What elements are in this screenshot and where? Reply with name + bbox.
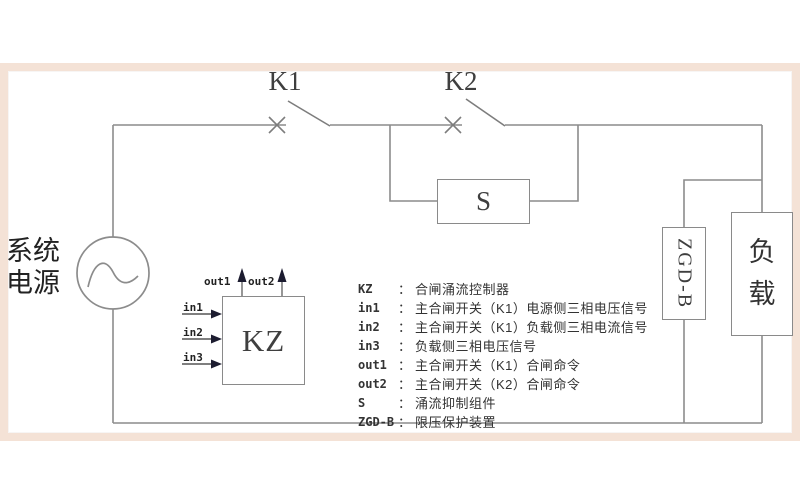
legend-item-in3: in3：负载侧三相电压信号 bbox=[358, 336, 648, 355]
schematic-canvas: S KZ ZGD-B 负载 K1 K2 系统电源 out1 out2 in1 i… bbox=[0, 0, 800, 500]
legend-desc: 主合闸开关（K1）负载侧三相电流信号 bbox=[415, 317, 648, 336]
legend-desc: 合闸涌流控制器 bbox=[415, 279, 510, 298]
port-in1-label: in1 bbox=[183, 301, 203, 314]
legend-key: KZ bbox=[358, 282, 398, 296]
port-in2-label: in2 bbox=[183, 326, 203, 339]
legend-item-out2: out2：主合闸开关（K2）合闸命令 bbox=[358, 374, 648, 393]
legend-desc: 主合闸开关（K1）合闸命令 bbox=[415, 355, 580, 374]
legend-key: ZGD-B bbox=[358, 415, 398, 429]
legend-item-zgdb: ZGD-B：限压保护装置 bbox=[358, 412, 648, 431]
voltage-protector-box: ZGD-B bbox=[662, 227, 706, 320]
voltage-protector-label: ZGD-B bbox=[673, 238, 696, 309]
legend-desc: 主合闸开关（K2）合闸命令 bbox=[415, 374, 580, 393]
port-out2-label: out2 bbox=[248, 275, 275, 288]
legend-item-s: S：涌流抑制组件 bbox=[358, 393, 648, 412]
legend-item-out1: out1：主合闸开关（K1）合闸命令 bbox=[358, 355, 648, 374]
legend-key: in2 bbox=[358, 320, 398, 334]
load-box: 负载 bbox=[731, 212, 793, 336]
controller-box: KZ bbox=[222, 296, 305, 385]
load-label: 负载 bbox=[749, 232, 776, 316]
legend-key: in1 bbox=[358, 301, 398, 315]
legend-key: in3 bbox=[358, 339, 398, 353]
legend-item-in1: in1：主合闸开关（K1）电源侧三相电压信号 bbox=[358, 298, 648, 317]
switch-k2-label: K2 bbox=[439, 66, 483, 97]
switch-k1-label: K1 bbox=[263, 66, 307, 97]
legend-desc: 负载侧三相电压信号 bbox=[415, 336, 537, 355]
legend-item-kz: KZ：合闸涌流控制器 bbox=[358, 279, 648, 298]
legend-key: out2 bbox=[358, 377, 398, 391]
legend-item-in2: in2：主合闸开关（K1）负载侧三相电流信号 bbox=[358, 317, 648, 336]
legend-key: S bbox=[358, 396, 398, 410]
legend-desc: 主合闸开关（K1）电源侧三相电压信号 bbox=[415, 298, 648, 317]
surge-suppressor-box: S bbox=[437, 179, 530, 224]
legend-desc: 涌流抑制组件 bbox=[415, 393, 496, 412]
port-in3-label: in3 bbox=[183, 351, 203, 364]
legend-key: out1 bbox=[358, 358, 398, 372]
surge-suppressor-label: S bbox=[476, 186, 491, 217]
legend: KZ：合闸涌流控制器 in1：主合闸开关（K1）电源侧三相电压信号 in2：主合… bbox=[358, 279, 648, 431]
system-power-label: 系统电源 bbox=[6, 235, 60, 299]
port-out1-label: out1 bbox=[204, 275, 231, 288]
controller-label: KZ bbox=[242, 323, 285, 359]
legend-desc: 限压保护装置 bbox=[415, 412, 496, 431]
